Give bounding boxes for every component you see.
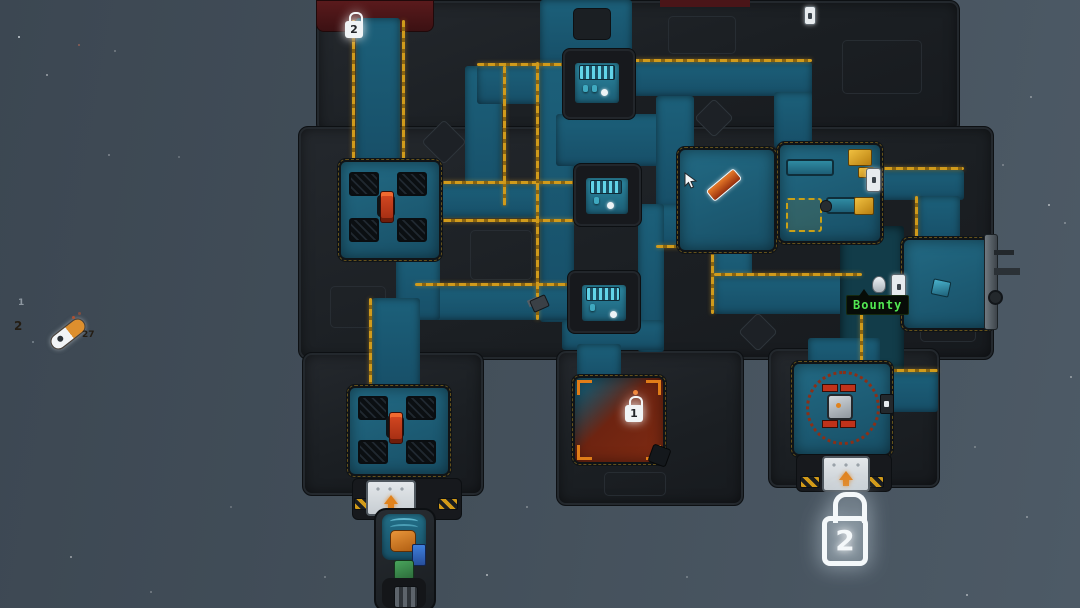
hull-panel — [668, 16, 736, 54]
vent-grate — [349, 218, 379, 242]
lock-level-2-number: 2 — [345, 21, 363, 38]
blue-cargo-box[interactable] — [412, 544, 426, 566]
conduit-line — [874, 167, 964, 170]
gold-loot[interactable] — [848, 149, 872, 166]
console-room-middle — [573, 163, 642, 227]
corner-bracket — [646, 380, 661, 395]
door-lounge-east[interactable] — [866, 168, 881, 192]
conduit-line — [711, 244, 714, 314]
bounty-tag: Bounty — [846, 295, 909, 315]
crew-member[interactable] — [583, 85, 588, 92]
teleporter-machine[interactable] — [827, 394, 853, 420]
bounty-tag-label: Bounty — [853, 298, 902, 312]
corridor — [632, 62, 812, 96]
crew-member[interactable] — [592, 85, 597, 92]
pod-engine — [394, 586, 418, 608]
conduit-line — [433, 219, 581, 222]
airlock-lock-number: 2 — [822, 516, 868, 566]
corridor — [774, 92, 812, 148]
vent-grate — [406, 396, 436, 420]
pad-bar — [840, 384, 856, 392]
console-room-bottom — [567, 270, 641, 334]
guard[interactable] — [607, 202, 614, 209]
weapon-pickup[interactable] — [706, 168, 743, 202]
vent-grate — [397, 172, 427, 196]
hazard-stripe — [438, 498, 458, 510]
conduit-line — [352, 20, 355, 160]
hull-panel — [470, 230, 532, 280]
green-pad — [394, 560, 414, 580]
conduit-line — [369, 298, 372, 390]
vent-grate — [397, 218, 427, 242]
game-viewport: 1 2 Bounty — [0, 0, 1080, 608]
turret-room-lower — [346, 384, 452, 478]
lock-level-1-number: 1 — [625, 405, 643, 422]
vent-grate — [358, 440, 388, 464]
docked-pod[interactable] — [374, 508, 436, 608]
alarm-marker — [633, 390, 638, 395]
console-terminal[interactable] — [586, 287, 620, 301]
lounge-room — [776, 141, 884, 245]
security-turret[interactable] — [375, 191, 397, 221]
airlock-lock-level-2-icon[interactable]: 2 — [822, 492, 868, 570]
security-turret[interactable] — [384, 412, 406, 442]
crew-member[interactable] — [594, 197, 599, 204]
crew-member-seated[interactable] — [820, 200, 832, 212]
cursor-pointer-icon — [684, 172, 698, 190]
conduit-line — [433, 181, 581, 184]
cargo-room — [900, 236, 996, 332]
turret-room-upper — [337, 158, 443, 262]
docking-port-main[interactable] — [822, 456, 870, 492]
lock-level-2-icon[interactable]: 2 — [345, 12, 363, 40]
airlock-port[interactable] — [988, 290, 1003, 305]
conduit-line — [402, 20, 405, 160]
pod-left-count: 2 — [14, 319, 22, 333]
pad-bar — [822, 384, 838, 392]
wall-door[interactable] — [880, 394, 894, 414]
corner-bracket — [577, 380, 592, 395]
conduit-line — [714, 273, 862, 276]
guard[interactable] — [601, 89, 608, 96]
item-room — [676, 146, 778, 254]
hull-panel — [842, 40, 922, 94]
corridor — [372, 298, 420, 390]
red-room-top-mid — [660, 0, 750, 7]
taped-loot-zone — [786, 198, 822, 232]
corner-bracket — [577, 445, 592, 460]
starfield — [18, 36, 20, 38]
lock-level-1-icon[interactable]: 1 — [625, 396, 643, 424]
hull-panel — [604, 472, 666, 496]
console-terminal[interactable] — [590, 180, 622, 194]
conduit-line — [632, 59, 812, 62]
console-room-top — [562, 48, 636, 120]
bench — [786, 159, 834, 176]
thruster-spark — [72, 316, 75, 319]
antenna-arm — [994, 268, 1020, 275]
hazard-stripe — [800, 476, 820, 488]
external-airlock-rail — [984, 234, 998, 330]
door-top-edge[interactable] — [804, 6, 816, 25]
pod-right-count: 27 — [82, 330, 95, 340]
conduit-line — [503, 66, 506, 206]
antenna-arm — [994, 250, 1014, 255]
bounty-target-character[interactable] — [872, 276, 886, 293]
dock-arrow-icon — [839, 471, 853, 480]
guard[interactable] — [610, 311, 617, 318]
hull-island — [573, 8, 611, 40]
pad-bar — [840, 420, 856, 428]
gold-loot[interactable] — [854, 197, 874, 215]
conduit-line — [415, 283, 577, 286]
teleporter-room — [790, 360, 894, 458]
crew-member[interactable] — [590, 304, 595, 311]
console-terminal[interactable] — [579, 65, 615, 80]
crate-item[interactable] — [931, 278, 952, 297]
pod-top-count: 1 — [18, 298, 24, 308]
pad-bar — [822, 420, 838, 428]
dock-arrow-icon — [384, 495, 398, 504]
vent-grate — [406, 440, 436, 464]
conduit-line — [536, 62, 539, 320]
